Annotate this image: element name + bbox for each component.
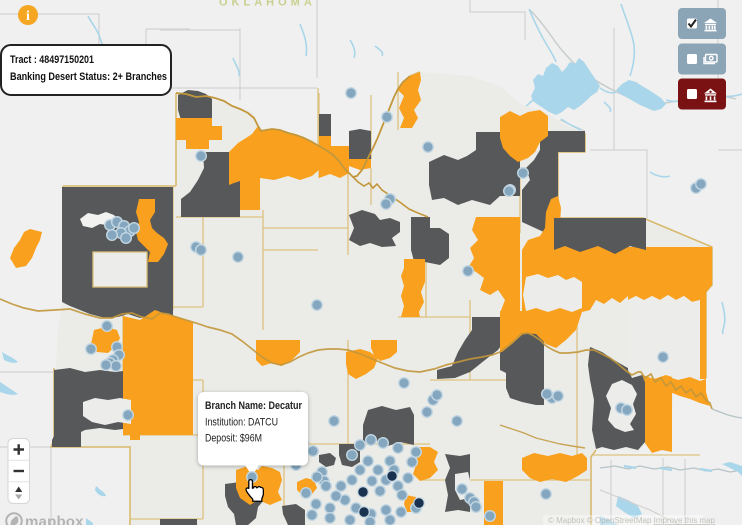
svg-text:Institution: DATCU: Institution: DATCU [205,417,278,429]
svg-text:OKLAHOMA: OKLAHOMA [219,0,316,9]
svg-text:Banking Desert Status: 2+ Bran: Banking Desert Status: 2+ Branches [10,71,167,83]
svg-text:Deposit: $96M: Deposit: $96M [205,433,262,445]
svg-text:i: i [26,9,30,24]
svg-text:Tract : 48497150201: Tract : 48497150201 [10,54,94,66]
svg-text:mapbox: mapbox [25,514,84,525]
svg-text:© Mapbox © OpenStreetMap Impro: © Mapbox © OpenStreetMap Improve this ma… [548,516,716,525]
svg-text:Branch Name: Decatur: Branch Name: Decatur [205,400,303,412]
